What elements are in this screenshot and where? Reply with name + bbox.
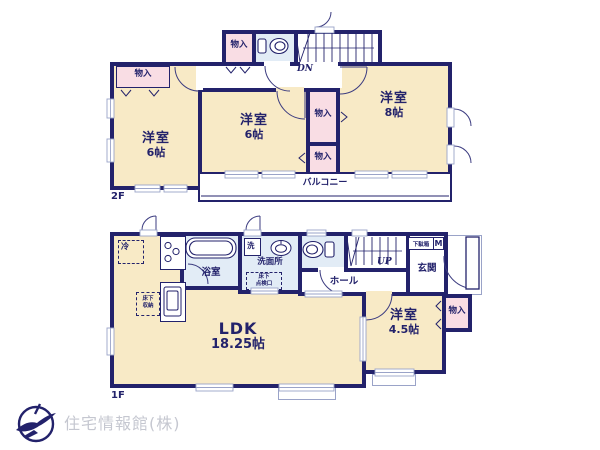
room-1f-bedroom-name: 洋室	[390, 309, 418, 324]
underfloor-storage-label: 床下 収納	[136, 296, 160, 310]
room-2f-center-label: 洋室 6帖	[198, 114, 310, 142]
company-logo-icon	[10, 396, 62, 448]
room-2f-west-label: 洋室 6帖	[110, 132, 202, 160]
balcony-label: バルコニー	[198, 178, 452, 188]
closet-2f-west-label: 物入	[116, 70, 170, 80]
room-2f-east-label: 洋室 8帖	[336, 92, 452, 120]
floorplan-canvas: 下駄箱 M	[0, 0, 600, 450]
stairwell-2f	[294, 30, 382, 66]
shoe-cabinet-label: 下駄箱	[409, 238, 433, 249]
toilet-room-2f	[252, 30, 298, 66]
closet-1f-label: 物入	[442, 307, 472, 317]
toilet-room-1f	[298, 232, 348, 272]
room-1f-bedroom-label: 洋室 4.5帖	[362, 309, 446, 337]
stairs-1f-label: UP	[377, 257, 392, 267]
inspection-hatch-line1: 床下	[258, 274, 269, 281]
closet-2f-top-label: 物入	[222, 41, 256, 51]
washroom-label: 洗面所	[238, 258, 302, 268]
room-ldk-name: LDK	[219, 320, 258, 338]
room-ldk-size: 18.25帖	[211, 338, 265, 353]
room-2f-west-name: 洋室	[142, 132, 170, 147]
terrace-step-bedroom	[372, 374, 416, 386]
closet-2f-mid-lower-label: 物入	[306, 153, 340, 163]
room-1f-bedroom-size: 4.5帖	[389, 324, 420, 337]
room-2f-east-size: 8帖	[385, 107, 404, 120]
stove-counter	[160, 236, 186, 270]
room-2f-east-name: 洋室	[380, 92, 408, 107]
terrace-step-ldk	[278, 387, 336, 400]
room-ldk-label: LDK 18.25帖	[110, 320, 366, 353]
inspection-hatch-label: 床下 点検口	[246, 274, 282, 288]
underfloor-storage-line1: 床下	[142, 296, 153, 303]
entrance-porch	[448, 235, 482, 295]
underfloor-storage-line2: 収納	[142, 303, 153, 310]
closet-2f-mid-upper-label: 物入	[306, 110, 340, 120]
room-2f-center-size: 6帖	[245, 129, 264, 142]
entrance-label: 玄関	[406, 264, 448, 275]
stairs-2f-label: DN	[297, 64, 313, 74]
company-name: 住宅情報館(株)	[64, 410, 181, 434]
bathroom-label: 浴室	[180, 268, 242, 279]
bathroom	[180, 232, 242, 290]
room-2f-west-size: 6帖	[147, 147, 166, 160]
washer-label: 洗	[247, 242, 255, 251]
shoe-cabinet: 下駄箱 M	[408, 237, 444, 250]
floor-2f-tag: 2F	[111, 191, 125, 203]
inspection-hatch-line2: 点検口	[256, 281, 273, 288]
refrigerator-label: 冷	[121, 242, 129, 251]
kitchen-sink-counter	[160, 282, 186, 322]
room-2f-center-name: 洋室	[240, 114, 268, 129]
floor-1f-tag: 1F	[111, 390, 125, 402]
shoe-cabinet-size: M	[433, 238, 443, 249]
hall-label: ホール	[300, 277, 388, 288]
